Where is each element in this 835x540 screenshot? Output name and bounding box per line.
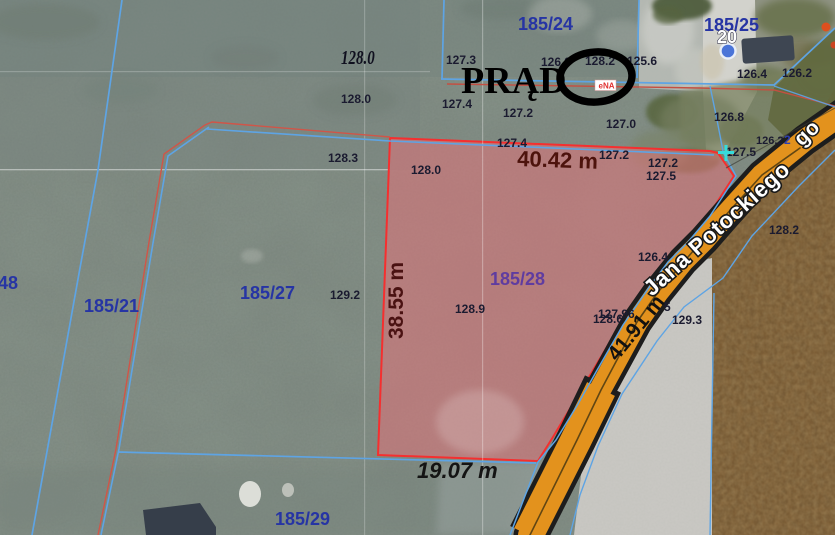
svg-text:129.3: 129.3 (672, 313, 702, 327)
svg-text:127.2: 127.2 (599, 148, 629, 162)
svg-text:126.4: 126.4 (737, 67, 767, 81)
svg-text:185/24: 185/24 (518, 14, 573, 34)
svg-text:185/21: 185/21 (84, 296, 139, 316)
svg-text:128.9: 128.9 (455, 302, 485, 316)
svg-text:48: 48 (0, 273, 18, 293)
svg-text:185/28: 185/28 (490, 269, 545, 289)
svg-text:eNA: eNA (599, 82, 615, 91)
svg-text:40.42 m: 40.42 m (517, 146, 599, 174)
svg-text:38.55 m: 38.55 m (385, 262, 408, 339)
svg-text:128.2: 128.2 (769, 223, 799, 237)
svg-text:126.2: 126.2 (756, 135, 784, 147)
svg-text:128.3: 128.3 (328, 151, 358, 165)
svg-text:127.2: 127.2 (503, 106, 533, 120)
svg-text:128.0: 128.0 (341, 92, 371, 106)
svg-text:PRĄD: PRĄD (461, 60, 567, 102)
svg-text:126.8: 126.8 (714, 110, 744, 124)
svg-text:20: 20 (717, 27, 737, 47)
svg-text:185/27: 185/27 (240, 283, 295, 303)
svg-text:127.2: 127.2 (648, 156, 678, 170)
svg-text:127.5: 127.5 (646, 169, 676, 183)
svg-text:126.2: 126.2 (782, 66, 812, 80)
svg-text:19.07 m: 19.07 m (417, 458, 498, 483)
svg-text:128.0: 128.0 (341, 46, 375, 69)
svg-text:185/29: 185/29 (275, 509, 330, 529)
svg-text:127.0: 127.0 (606, 117, 636, 131)
svg-text:128.6: 128.6 (593, 312, 623, 326)
svg-text:129.2: 129.2 (330, 288, 360, 302)
svg-text:128.0: 128.0 (411, 163, 441, 177)
